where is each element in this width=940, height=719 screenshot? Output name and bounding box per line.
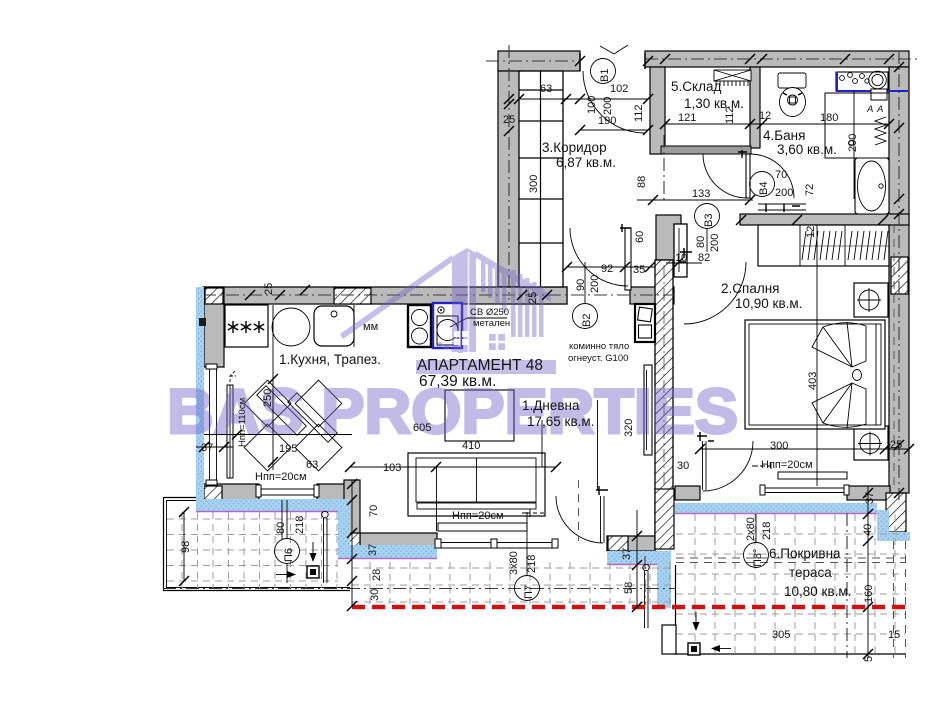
svg-text:218: 218 xyxy=(294,516,306,534)
svg-text:37: 37 xyxy=(367,544,379,556)
svg-text:88: 88 xyxy=(636,176,648,188)
svg-text:250: 250 xyxy=(262,389,274,407)
svg-text:102: 102 xyxy=(610,83,628,95)
svg-text:30: 30 xyxy=(677,460,689,472)
svg-text:6,87 кв.м.: 6,87 кв.м. xyxy=(556,155,616,170)
svg-text:160: 160 xyxy=(863,585,875,603)
svg-text:70: 70 xyxy=(775,169,787,181)
svg-text:3x80: 3x80 xyxy=(508,551,520,575)
svg-text:63: 63 xyxy=(306,459,318,471)
svg-text:92: 92 xyxy=(601,263,613,275)
svg-text:Нпп=20см: Нпп=20см xyxy=(761,459,813,471)
svg-text:80: 80 xyxy=(275,522,287,534)
svg-text:25: 25 xyxy=(503,114,515,126)
svg-text:63: 63 xyxy=(540,83,552,95)
svg-text:410: 410 xyxy=(462,440,480,452)
svg-text:A: A xyxy=(866,104,873,115)
svg-text:37: 37 xyxy=(864,492,876,504)
svg-text:В1: В1 xyxy=(599,69,611,82)
svg-text:17,65 кв.м.: 17,65 кв.м. xyxy=(527,414,594,429)
svg-text:218: 218 xyxy=(761,522,773,540)
svg-text:80: 80 xyxy=(695,236,707,248)
svg-text:мм: мм xyxy=(363,321,378,333)
svg-text:10,80 кв.м.: 10,80 кв.м. xyxy=(784,584,851,599)
svg-text:112: 112 xyxy=(724,106,736,124)
svg-text:3.Коридор: 3.Коридор xyxy=(542,140,607,155)
svg-text:133: 133 xyxy=(692,188,710,200)
svg-text:12: 12 xyxy=(805,226,817,238)
svg-text:П8°: П8° xyxy=(752,549,764,567)
svg-text:300: 300 xyxy=(770,440,788,452)
svg-text:2.Спалня: 2.Спалня xyxy=(721,281,779,296)
svg-text:37: 37 xyxy=(621,548,633,560)
svg-text:2x80: 2x80 xyxy=(745,517,757,541)
svg-text:200: 200 xyxy=(589,275,601,293)
svg-text:4.Баня: 4.Баня xyxy=(763,128,805,143)
svg-text:огнеуст. G100: огнеуст. G100 xyxy=(568,353,628,364)
svg-text:АПАРТАМЕНТ 48: АПАРТАМЕНТ 48 xyxy=(417,357,543,374)
svg-text:30: 30 xyxy=(369,589,381,601)
svg-text:5.Склад: 5.Склад xyxy=(671,79,721,94)
svg-text:67,39 кв.м.: 67,39 кв.м. xyxy=(419,373,496,390)
svg-text:218: 218 xyxy=(526,555,538,573)
svg-text:тераса: тераса xyxy=(789,565,832,580)
svg-text:70: 70 xyxy=(368,505,380,517)
svg-text:П7: П7 xyxy=(523,585,535,599)
svg-text:метален: метален xyxy=(473,318,510,329)
svg-text:200: 200 xyxy=(847,134,859,152)
svg-text:25: 25 xyxy=(527,292,539,304)
svg-text:60: 60 xyxy=(634,231,646,243)
svg-text:605: 605 xyxy=(413,422,431,434)
svg-text:6.Покривна: 6.Покривна xyxy=(769,546,841,561)
svg-text:Нпп=110см: Нпп=110см xyxy=(237,398,248,447)
svg-text:100: 100 xyxy=(586,96,598,114)
svg-text:35: 35 xyxy=(633,264,645,276)
svg-text:1.Кухня, Трапез.: 1.Кухня, Трапез. xyxy=(279,352,381,367)
svg-text:320: 320 xyxy=(623,419,635,437)
svg-text:П6: П6 xyxy=(283,548,295,562)
svg-text:10,90 кв.м.: 10,90 кв.м. xyxy=(735,296,802,311)
svg-text:300: 300 xyxy=(528,175,540,193)
svg-text:82: 82 xyxy=(698,252,710,264)
svg-text:В2: В2 xyxy=(581,314,593,327)
svg-text:A: A xyxy=(876,104,883,115)
svg-text:1.Дневна: 1.Дневна xyxy=(522,398,580,413)
svg-text:28: 28 xyxy=(371,569,383,581)
svg-text:98: 98 xyxy=(180,541,192,553)
svg-text:103: 103 xyxy=(383,462,401,474)
svg-text:Нпп=20см: Нпп=20см xyxy=(255,471,307,483)
svg-text:195: 195 xyxy=(279,443,297,455)
svg-text:200: 200 xyxy=(775,187,793,199)
svg-text:15: 15 xyxy=(888,629,900,641)
svg-text:305: 305 xyxy=(772,629,790,641)
svg-text:121: 121 xyxy=(678,112,696,124)
svg-text:В4: В4 xyxy=(758,182,770,195)
svg-text:СВ Ø250: СВ Ø250 xyxy=(470,307,509,318)
svg-text:3,60 кв.м.: 3,60 кв.м. xyxy=(777,142,837,157)
svg-text:коминно тяло: коминно тяло xyxy=(569,341,629,352)
svg-text:190: 190 xyxy=(598,115,616,127)
svg-text:112: 112 xyxy=(633,104,645,122)
svg-text:В3: В3 xyxy=(703,214,715,227)
svg-text:25: 25 xyxy=(263,283,275,295)
svg-text:200: 200 xyxy=(709,234,721,252)
svg-text:72: 72 xyxy=(804,184,816,196)
svg-text:Нпп=20см: Нпп=20см xyxy=(452,510,504,522)
svg-text:180: 180 xyxy=(820,112,838,124)
svg-text:58: 58 xyxy=(623,582,635,594)
svg-text:10: 10 xyxy=(675,252,687,264)
